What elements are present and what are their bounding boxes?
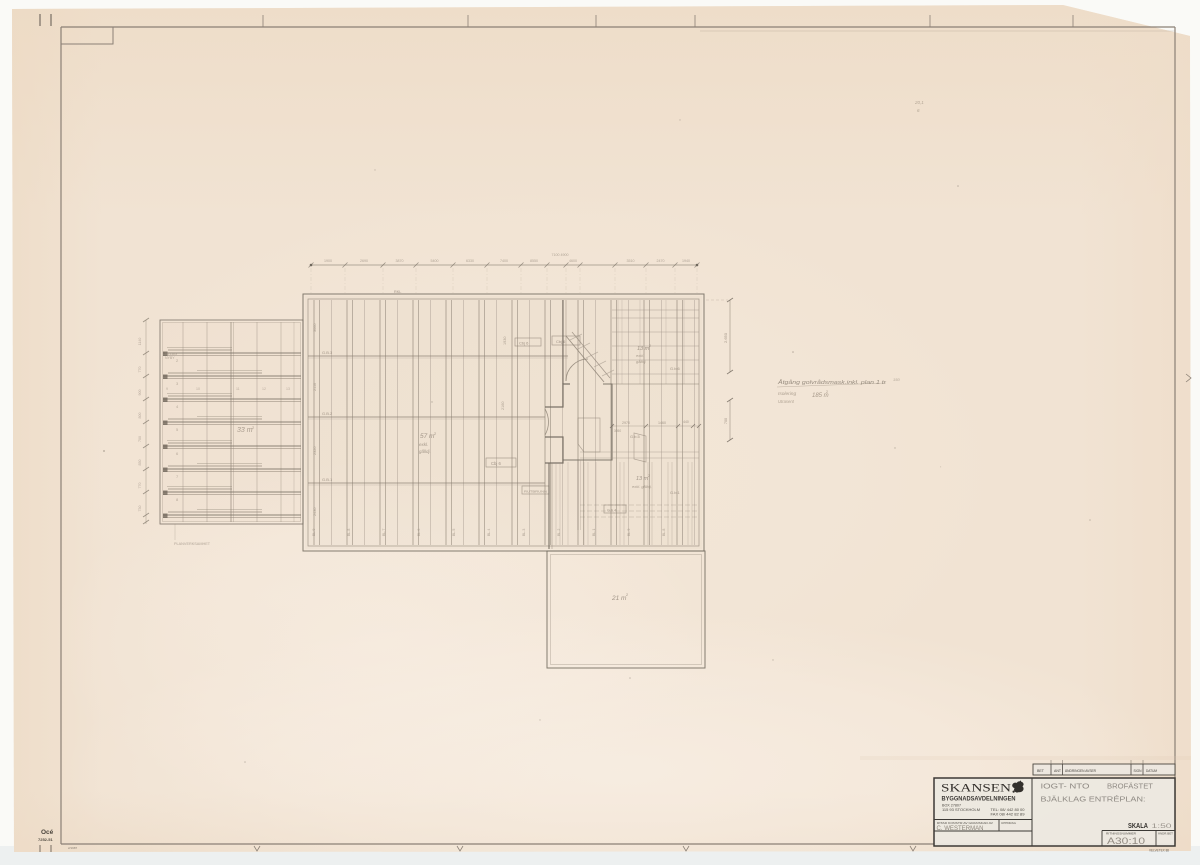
svg-text:G.B.2: G.B.2 [322,411,333,416]
svg-text:57 m: 57 m [420,433,435,440]
svg-text:2: 2 [626,593,628,597]
svg-text:RITNINGSNUMMER: RITNINGSNUMMER [1106,832,1137,836]
svg-text:BL.6: BL.6 [417,529,421,536]
svg-text:A30:10: A30:10 [1107,836,1145,846]
svg-text:RITAD KONSTR AV GRANSKAD AV: RITAD KONSTR AV GRANSKAD AV [937,821,993,825]
svg-text:2430: 2430 [313,508,317,516]
svg-text:3510: 3510 [627,259,635,263]
svg-text:5400: 5400 [431,259,439,263]
svg-text:UPPDRAG: UPPDRAG [1001,821,1017,825]
svg-text:21 m: 21 m [611,595,627,602]
svg-text:7252-51: 7252-51 [38,837,53,842]
svg-text:FAX 08/ 442 82 89: FAX 08/ 442 82 89 [991,812,1026,817]
svg-text:RUTBRUNN: RUTBRUNN [524,490,547,494]
svg-text:Isolering: Isolering [778,391,796,397]
svg-text:Cbj 6: Cbj 6 [491,461,501,466]
svg-text:PLANVERKSAMHET: PLANVERKSAMHET [174,542,211,546]
svg-text:13 m: 13 m [636,476,649,482]
svg-text:BL.7: BL.7 [382,529,386,536]
svg-text:ÄNDR.BET: ÄNDR.BET [1158,832,1173,836]
svg-text:BL.9: BL.9 [312,529,316,536]
svg-text:exkl. gålldj.: exkl. gålldj. [632,484,652,489]
svg-text:IOGT- NTO: IOGT- NTO [1041,782,1090,791]
svg-text:13 m: 13 m [637,346,650,352]
svg-text:1900: 1900 [324,259,332,263]
svg-text:2: 2 [648,474,650,478]
svg-text:2: 2 [649,344,651,348]
svg-text:BL.4: BL.4 [487,529,491,536]
svg-text:exkl.: exkl. [636,353,644,358]
svg-text:1140: 1140 [138,338,142,346]
svg-text:Utrasent: Utrasent [778,399,795,404]
svg-text:Cbj 6: Cbj 6 [519,341,529,346]
svg-text:800: 800 [138,413,142,419]
svg-text:6330: 6330 [466,259,474,263]
svg-text:2: 2 [434,432,436,436]
svg-text:BL.9: BL.9 [627,529,631,536]
svg-text:BL.8: BL.8 [662,529,666,536]
svg-text:ANT: ANT [1054,769,1061,773]
svg-text:900: 900 [138,390,142,396]
svg-text:VELVETEX 88: VELVETEX 88 [1149,849,1169,853]
svg-text:3060: 3060 [313,324,317,332]
svg-text:3870: 3870 [396,259,404,263]
svg-text:2: 2 [826,390,828,394]
svg-text:gålldj.: gålldj. [636,359,646,364]
svg-text:ÄNDRINGEN AVSER: ÄNDRINGEN AVSER [1065,769,1097,773]
svg-text:BET: BET [1037,769,1044,773]
svg-text:2110: 2110 [313,383,317,391]
svg-text:Cbj 6: Cbj 6 [556,339,566,344]
svg-text:700: 700 [724,418,728,424]
svg-text:gålldj.: gålldj. [419,448,431,454]
svg-text:DATUM: DATUM [1146,769,1157,773]
svg-text:770: 770 [138,483,142,489]
svg-text:SKANSEN: SKANSEN [941,783,1012,795]
svg-text:BYGGNADSAVDELNINGEN: BYGGNADSAVDELNINGEN [942,796,1016,803]
svg-text:BL.1: BL.1 [592,529,596,536]
svg-text:440: 440 [683,420,689,424]
svg-text:SIGN: SIGN [1134,769,1143,773]
svg-text:770: 770 [138,367,142,373]
svg-text:115 93 STOCKHOLM: 115 93 STOCKHOLM [942,807,980,812]
svg-text:850: 850 [138,460,142,466]
svg-text:1940: 1940 [682,259,690,263]
svg-text:BL.8: BL.8 [347,529,351,536]
svg-text:2.650: 2.650 [723,332,728,343]
svg-text:150: 150 [893,377,900,382]
svg-text:1930: 1930 [503,337,507,345]
svg-text:BROFÄSTET: BROFÄSTET [1107,782,1153,791]
svg-text:2160: 2160 [501,402,505,410]
svg-text:BJÄLKLAG ENTRÉPLAN:: BJÄLKLAG ENTRÉPLAN: [1041,795,1146,804]
svg-text:BL.5: BL.5 [452,529,456,536]
svg-text:G.b.5: G.b.5 [630,434,641,439]
svg-text:700: 700 [138,436,142,442]
svg-text:G.b.1: G.b.1 [670,490,681,495]
svg-text:SKALA: SKALA [1128,823,1148,830]
svg-text:2470: 2470 [657,259,665,263]
svg-text:RKL: RKL [394,290,401,294]
svg-text:20,1: 20,1 [914,100,924,105]
svg-text:G.B.1: G.B.1 [322,477,333,482]
svg-text:C. WESTERMAN: C. WESTERMAN [937,826,984,832]
svg-text:BL.2: BL.2 [557,529,561,536]
svg-text:G.B.3: G.B.3 [322,350,333,355]
svg-text:2970: 2970 [622,421,630,425]
svg-text:exkl.: exkl. [419,442,428,447]
svg-text:8550: 8550 [530,259,538,263]
svg-text:G.b.6: G.b.6 [670,366,681,371]
svg-text:2/1987: 2/1987 [68,846,78,850]
svg-text:G.b.4: G.b.4 [607,509,616,513]
svg-text:3050: 3050 [614,429,621,433]
svg-text:1460: 1460 [658,421,666,425]
svg-text:7100 4900: 7100 4900 [552,253,569,257]
svg-text:1:50: 1:50 [1152,823,1173,830]
svg-text:2690: 2690 [360,259,368,263]
svg-text:Océ: Océ [41,829,54,836]
svg-text:4600: 4600 [569,259,577,263]
svg-text:2320: 2320 [313,447,317,455]
svg-text:BL.3: BL.3 [522,529,526,536]
svg-text:7400: 7400 [500,259,508,263]
svg-text:730: 730 [138,506,142,512]
